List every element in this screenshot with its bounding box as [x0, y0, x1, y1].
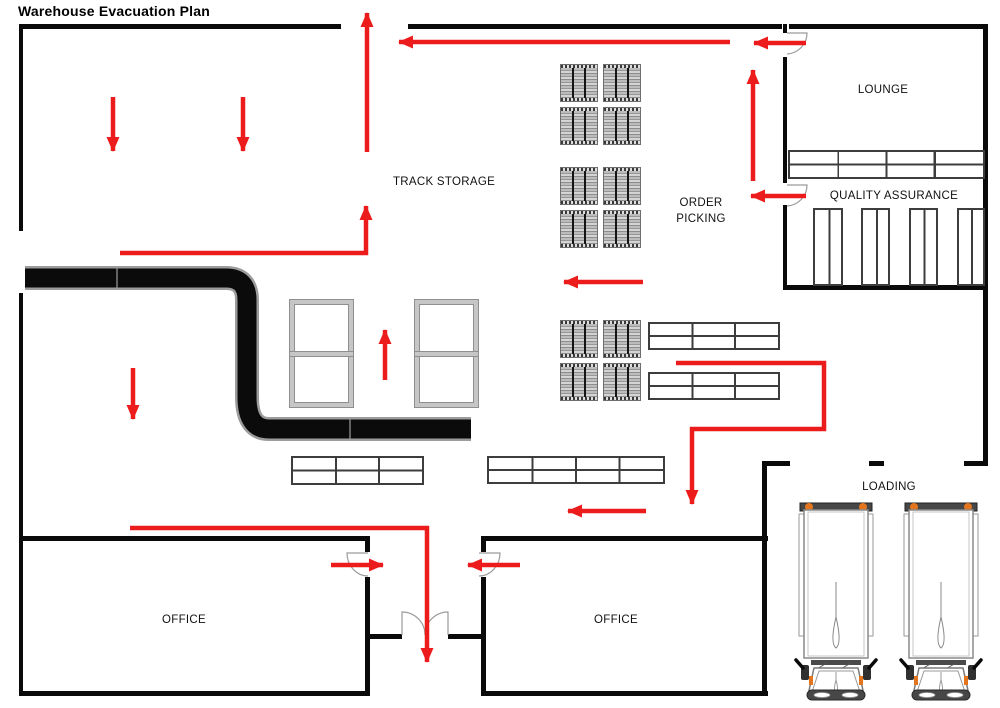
room-label-office-right: OFFICE — [594, 614, 638, 626]
evac-arrow-elbow-track-storage — [120, 206, 366, 253]
room-label-lounge: LOUNGE — [858, 84, 908, 96]
room-label-track-storage: TRACK STORAGE — [393, 176, 495, 188]
evacuation-routes-layer — [0, 0, 1000, 708]
room-label-loading: LOADING — [862, 481, 916, 493]
evac-arrow-zigzag-east — [676, 363, 824, 504]
room-label-quality-assurance: QUALITY ASSURANCE — [830, 190, 958, 202]
evac-arrow-main-exit — [130, 528, 427, 662]
room-label-office-left: OFFICE — [162, 614, 206, 626]
room-label-order-picking: ORDER PICKING — [665, 195, 737, 227]
warehouse-floor-plan: Warehouse Evacuation Plan — [0, 0, 1000, 708]
